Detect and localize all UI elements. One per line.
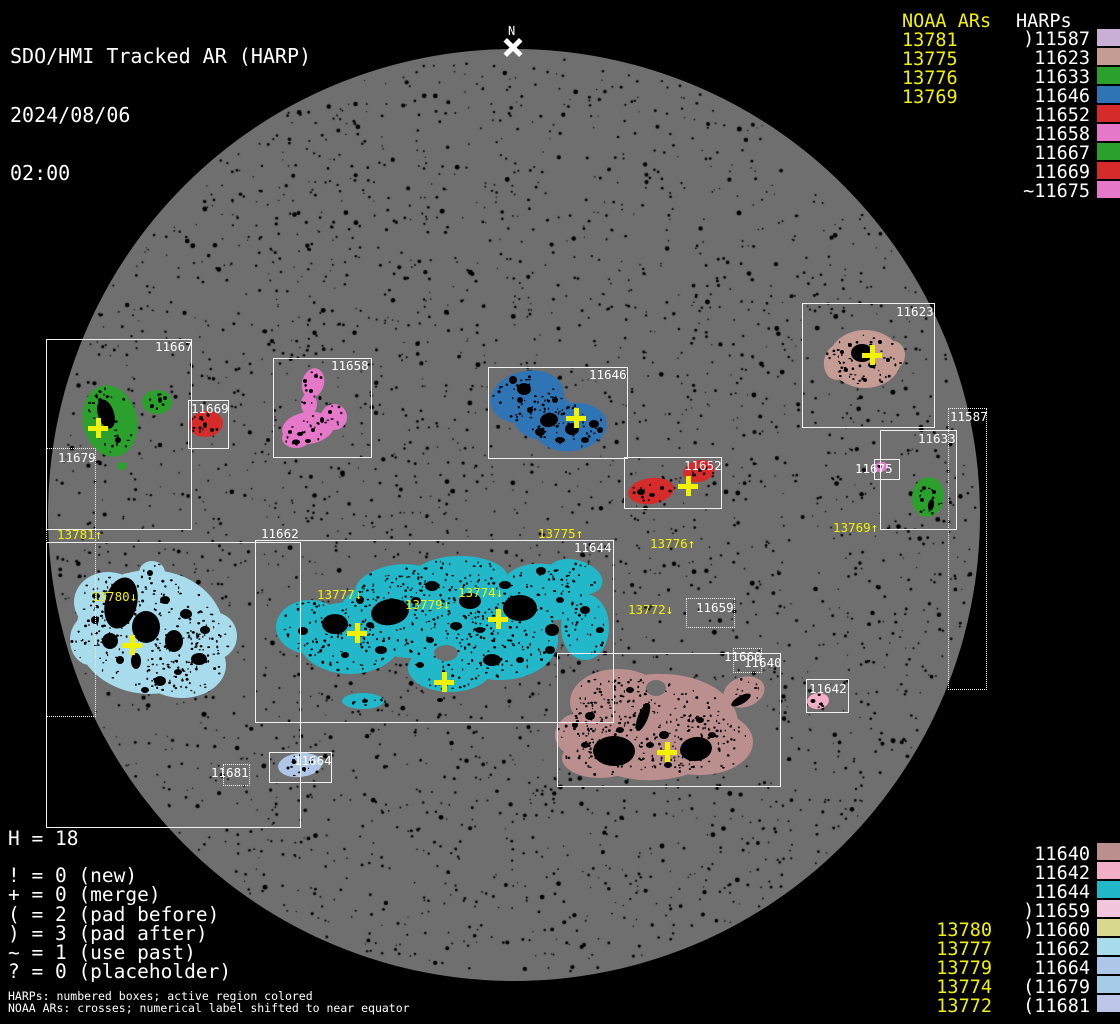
noaa-ar-cross-icon xyxy=(434,672,454,692)
app-title: SDO/HMI Tracked AR (HARP) xyxy=(10,47,311,67)
harp-box-label: 11623 xyxy=(896,305,934,318)
harp-box-label: 11675 xyxy=(855,462,893,475)
noaa-ar-number: 13774 xyxy=(935,978,992,997)
harp-color-square xyxy=(1097,843,1120,860)
noaa-ar-label: 13780↓ xyxy=(92,590,137,603)
harp-number: 11646 xyxy=(1000,87,1090,106)
harp-number: 11640 xyxy=(1000,845,1090,864)
harp-number: 11644 xyxy=(1000,883,1090,902)
harp-box-label: 11664 xyxy=(294,754,332,767)
noaa-ar-label: 13774↓ xyxy=(458,586,503,599)
harp-box-label: 11644 xyxy=(574,541,612,554)
harp-color-square xyxy=(1097,957,1120,974)
harp-box-label: 11659 xyxy=(696,601,734,614)
harp-box-label: 11587 xyxy=(950,410,988,423)
noaa-ars-header: NOAA ARs xyxy=(902,12,991,31)
harp-color-square xyxy=(1097,105,1120,122)
harp-box-label: 11658 xyxy=(331,359,369,372)
noaa-list-bottom: 1378013777137791377413772 xyxy=(935,921,992,1016)
harp-color-square xyxy=(1097,938,1120,955)
harp-color-square xyxy=(1097,995,1120,1012)
harp-number: 11669 xyxy=(1000,163,1090,182)
harp-color-square xyxy=(1097,181,1120,198)
noaa-ar-label: 13781↑ xyxy=(57,528,102,541)
legend-entry: ? = 0 (placeholder) xyxy=(8,962,231,981)
legend-entry: + = 0 (merge) xyxy=(8,885,231,904)
harp-number: 11662 xyxy=(1000,940,1090,959)
noaa-ar-number: 13781 xyxy=(902,31,958,50)
noaa-ar-cross-icon xyxy=(862,345,882,365)
harp-number: )11659 xyxy=(1000,902,1090,921)
harp-box-label: 11679 xyxy=(58,451,96,464)
harp-box-11658 xyxy=(273,358,372,458)
footer-line: NOAA ARs: crosses; numerical label shift… xyxy=(8,1002,410,1014)
noaa-ar-number: 13779 xyxy=(935,959,992,978)
harp-box-label: 11662 xyxy=(261,527,299,540)
title-block: SDO/HMI Tracked AR (HARP) 2024/08/06 02:… xyxy=(10,8,311,223)
north-x-marker-icon xyxy=(502,36,524,58)
noaa-ar-cross-icon xyxy=(566,408,586,428)
harp-color-square xyxy=(1097,86,1120,103)
harp-color-square xyxy=(1097,900,1120,917)
harp-number: 11642 xyxy=(1000,864,1090,883)
harp-number: (11679 xyxy=(1000,978,1090,997)
noaa-ar-cross-icon xyxy=(88,418,108,438)
harp-box-label: 11646 xyxy=(589,368,627,381)
harp-number: 11667 xyxy=(1000,144,1090,163)
legend-entry: ( = 2 (pad before) xyxy=(8,905,231,924)
noaa-ar-cross-icon xyxy=(122,635,142,655)
harp-number: (11681 xyxy=(1000,997,1090,1016)
harp-number: 11652 xyxy=(1000,106,1090,125)
harp-color-square xyxy=(1097,124,1120,141)
noaa-ar-cross-icon xyxy=(488,609,508,629)
noaa-ar-label: 13779↓ xyxy=(405,598,450,611)
noaa-ar-label: 13772↓ xyxy=(628,603,673,616)
harp-color-square xyxy=(1097,143,1120,160)
harp-box-11587 xyxy=(948,408,987,690)
noaa-list-top: 13781137751377613769 xyxy=(902,31,958,107)
harp-color-square xyxy=(1097,881,1120,898)
noaa-ar-cross-icon xyxy=(678,476,698,496)
harp-number: 11664 xyxy=(1000,959,1090,978)
harp-number: 11633 xyxy=(1000,68,1090,87)
noaa-ar-number: 13775 xyxy=(902,50,958,69)
footer-caption: HARPs: numbered boxes; active region col… xyxy=(8,990,410,1014)
noaa-ar-label: 13776↑ xyxy=(650,537,695,550)
harps-list-bottom: 116401164211644)11659)116601166211664(11… xyxy=(1000,845,1090,1016)
noaa-ar-label: 13777↓ xyxy=(317,588,362,601)
harp-number: 11658 xyxy=(1000,125,1090,144)
noaa-ar-number: 13780 xyxy=(935,921,992,940)
harp-box-label: 11633 xyxy=(918,432,956,445)
harp-box-label: 11667 xyxy=(155,340,193,353)
harp-tracking-plot: SDO/HMI Tracked AR (HARP) 2024/08/06 02:… xyxy=(0,0,1120,1024)
harp-color-square xyxy=(1097,29,1120,46)
legend-entries: ! = 0 (new)+ = 0 (merge)( = 2 (pad befor… xyxy=(8,866,231,982)
date-label: 2024/08/06 xyxy=(10,106,311,126)
noaa-ar-number: 13776 xyxy=(902,69,958,88)
harp-box-label: 11652 xyxy=(684,459,722,472)
harp-count: H = 18 xyxy=(8,829,78,848)
noaa-ar-label: 13769↑ xyxy=(833,521,878,534)
harp-number: 11623 xyxy=(1000,49,1090,68)
harp-box-label: 11681 xyxy=(211,766,249,779)
harp-color-square xyxy=(1097,976,1120,993)
noaa-ar-cross-icon xyxy=(657,742,677,762)
harp-color-square xyxy=(1097,919,1120,936)
north-label: N xyxy=(508,24,515,38)
noaa-ar-number: 13772 xyxy=(935,997,992,1016)
harp-box-11640 xyxy=(557,653,781,787)
harp-box-label: 11669 xyxy=(191,402,229,415)
noaa-ar-number: 13777 xyxy=(935,940,992,959)
harp-number: ~11675 xyxy=(1000,182,1090,201)
harp-color-square xyxy=(1097,48,1120,65)
time-label: 02:00 xyxy=(10,164,311,184)
noaa-ar-label: 13775↑ xyxy=(538,527,583,540)
harp-number: )11587 xyxy=(1000,30,1090,49)
harp-color-square xyxy=(1097,162,1120,179)
harp-box-11623 xyxy=(802,303,935,428)
harp-color-square xyxy=(1097,862,1120,879)
harp-box-label: 11640 xyxy=(744,656,782,669)
harp-box-label: 11642 xyxy=(809,682,847,695)
noaa-ar-cross-icon xyxy=(347,623,367,643)
harp-number: )11660 xyxy=(1000,921,1090,940)
harps-list-top: )115871162311633116461165211658116671166… xyxy=(1000,30,1090,201)
harp-color-square xyxy=(1097,67,1120,84)
noaa-ar-number: 13769 xyxy=(902,88,958,107)
